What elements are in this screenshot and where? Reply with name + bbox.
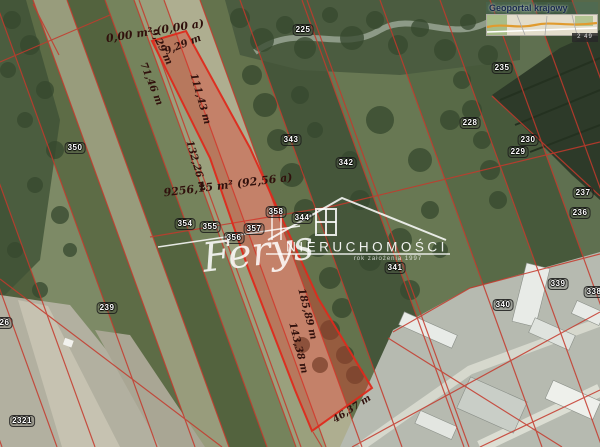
parcel-label-235: 235 [492,62,513,74]
parcel-label-229: 229 [508,146,529,158]
parcel-label-230: 230 [518,134,539,146]
parcel-label-2321: 2321 [9,415,35,427]
minimap-badge: 2 49 [572,33,598,42]
watermark-brand: NIERUCHOMOŚCI [286,240,448,255]
parcel-label-343: 343 [281,134,302,146]
watermark-tagline: rok założenia 1997 [354,256,422,262]
parcel-label-354: 354 [175,218,196,230]
parcel-label-341: 341 [385,262,406,274]
parcel-label-226: 226 [0,317,12,329]
parcel-label-350: 350 [65,142,86,154]
parcel-label-355: 355 [200,221,221,233]
minimap-roads [487,15,597,35]
parcel-label-358: 358 [266,206,287,218]
minimap-panel[interactable]: Geoportal krajowy 2 49 [486,2,598,36]
parcel-label-342: 342 [336,157,357,169]
minimap-map[interactable]: 2 49 [486,14,598,36]
map-viewport[interactable]: 0,00 m² (0,00 a) 9,29 m 9,29 m 71,46 m 1… [0,0,600,447]
parcel-label-339: 339 [548,278,569,290]
parcel-label-338: 338 [584,286,600,298]
parcel-label-237: 237 [573,187,594,199]
parcel-label-225: 225 [293,24,314,36]
parcel-label-340: 340 [493,299,514,311]
parcel-label-236: 236 [570,207,591,219]
parcel-label-239: 239 [97,302,118,314]
minimap-title: Geoportal krajowy [486,2,598,14]
parcel-label-228: 228 [460,117,481,129]
